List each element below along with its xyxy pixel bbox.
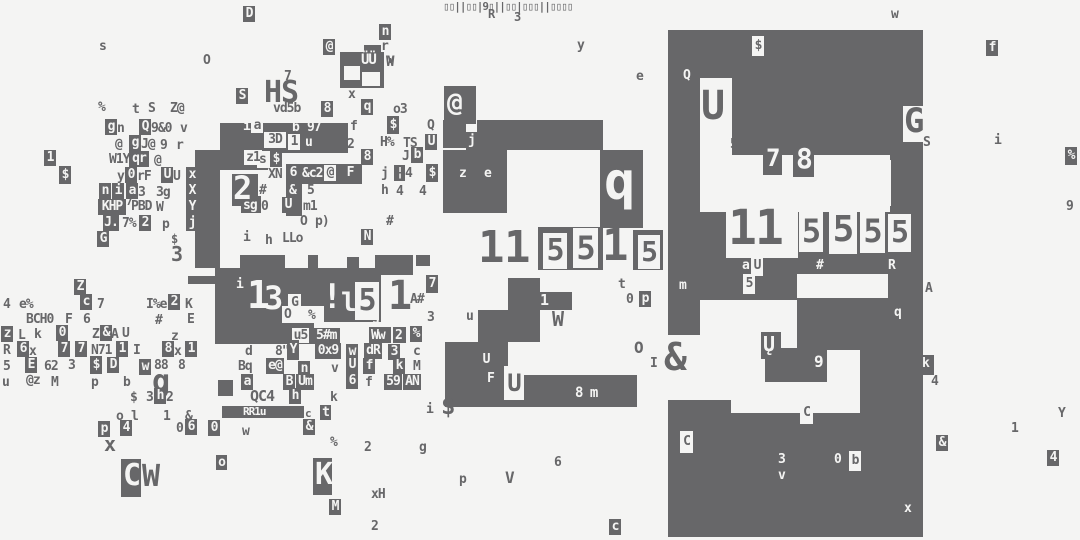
glyph: 7 [97,298,104,311]
glyph: O [284,308,291,321]
glyph: h [265,234,272,247]
glyph: 7% [122,217,136,230]
glyph: F [487,372,494,385]
glyph: Z [74,279,86,295]
glyph: 1 [288,134,300,150]
glyph: QC4 [250,389,274,404]
glyph: ! [322,280,341,314]
glyph: 1 [540,293,548,308]
glyph: 4 [396,185,403,198]
glyph: A [925,282,932,295]
glyph: k [922,357,929,370]
glyph: R [488,8,494,20]
glyph: e% [19,298,33,311]
glyph: v [778,469,785,482]
glyph: I [133,344,140,357]
glyph: 5 [799,210,823,252]
glyph: x [186,167,198,183]
glyph: d [245,345,252,358]
glyph: 4 [405,167,412,180]
glyph: 0 [626,293,633,306]
glyph: Ww [371,329,385,342]
glyph: M [413,360,420,373]
map-room-cutout [344,66,360,80]
glyph: @ [154,154,161,167]
glyph: Y [186,199,198,215]
glyph: O [203,54,210,67]
glyph: KHP [98,199,126,215]
glyph: 8 [321,101,333,117]
map-block [188,276,230,284]
glyph: 8 m [575,386,597,400]
glyph: 1 [163,410,170,423]
glyph: k [330,391,337,404]
glyph: BCH0 [26,313,53,326]
glyph: 2 [139,215,151,231]
glyph: m1 [303,200,317,213]
glyph: 6 [83,313,90,326]
glyph: 4 [931,375,938,388]
glyph: A# [410,293,424,306]
glyph: J [402,150,409,163]
glyph: 8 [178,359,185,372]
glyph: a [251,118,263,133]
glyph: o3 [393,103,407,116]
glyph: $ [426,164,438,182]
glyph: @z [26,374,40,387]
glyph: 6 [17,341,29,357]
glyph: i [994,134,1001,147]
map-block [508,278,540,342]
glyph: j [468,134,475,147]
glyph: 1 [116,341,128,357]
glyph: 1 [755,204,783,252]
glyph: Y [287,340,299,360]
glyph: 5 [543,233,567,269]
glyph: LLo [282,232,302,245]
glyph: RR1u [243,406,266,417]
glyph: l [131,410,138,423]
glyph: x [104,434,115,454]
glyph: 1 [728,204,756,252]
glyph: z [459,167,466,180]
glyph: 97 [307,121,321,134]
glyph: W [156,201,163,214]
glyph: % [308,309,315,322]
glyph: i [243,120,250,133]
glyph: @ [115,138,122,151]
glyph: U [480,352,492,368]
glyph: C [123,461,140,491]
glyph: 3 [138,186,145,199]
glyph: S [236,88,248,104]
glyph: s [259,153,266,166]
glyph: # [155,314,162,327]
glyph: 5 [888,214,911,252]
glyph: n [379,24,391,40]
glyph: 0 [56,325,68,341]
glyph: g [419,441,426,454]
glyph: u [2,376,9,389]
glyph: G [904,104,923,138]
glyph: 9 [814,354,823,370]
glyph: S [148,102,155,115]
glyph: t [320,405,331,420]
map-block [443,150,507,213]
glyph: 5 [573,228,598,268]
glyph: Q [683,69,690,82]
glyph: 5 [307,184,314,197]
glyph: E [25,357,37,373]
glyph: e [484,167,491,180]
glyph: b [849,451,861,471]
glyph: 5 [730,138,737,151]
glyph: Y [1058,407,1065,420]
glyph: D [243,6,255,22]
glyph: b [292,121,299,134]
glyph: v [331,362,338,375]
glyph: p) [315,215,329,228]
glyph: l [341,290,356,316]
glyph: 6 [346,373,358,389]
glyph: X [186,183,198,199]
glyph: H% [380,136,394,149]
glyph: 9&0 [151,122,171,135]
glyph: 7 [766,146,779,170]
glyph: & [936,435,948,451]
map-room-cutout [362,72,380,86]
glyph: U [425,134,437,150]
map-block [308,255,318,274]
glyph: @ [323,39,335,55]
glyph: 0 [834,453,841,466]
glyph: $ [387,116,399,134]
glyph: w [139,359,151,375]
glyph: ▯▯||▯▯|9▯||▯▯|▯▯▯||▯▯▯▯ [443,1,572,12]
glyph: f [986,40,998,56]
glyph: 7 [75,341,87,357]
glitch-terminal-canvas: ▯▯||▯▯|9▯||▯▯|▯▯▯||▯▯▯▯R3sOD@nrvÜÜWx7HSS… [0,0,1080,540]
glyph: 0 [176,422,183,435]
glyph: 2 [166,391,173,404]
glyph: U [701,86,724,126]
glyph: U [161,167,173,183]
map-block [478,310,508,342]
glyph: g [129,135,141,151]
glyph: j [186,215,198,231]
glyph: C [800,402,813,424]
glyph: e [636,70,643,83]
glyph: 7 [426,275,438,293]
glyph: 4 [120,420,132,436]
map-block [416,255,430,266]
glyph: h [381,184,388,197]
map-block [347,257,359,276]
glyph: f [365,376,372,389]
map-block [508,375,637,407]
glyph: 1 [504,226,530,270]
glyph: 1 [44,150,56,166]
glyph: 2 [347,138,354,151]
glyph: 8 [162,341,174,357]
glyph: XN [268,168,282,181]
glyph: 2 [395,329,402,342]
glyph: % [1065,147,1077,165]
glyph: qr [129,151,149,167]
glyph: 6 [554,456,561,469]
glyph: ÜÜ [361,53,376,67]
glyph: 2 [371,520,378,533]
glyph: N [361,229,373,245]
glyph: @ [447,90,462,116]
glyph: @ [324,165,336,181]
glyph: # [259,184,266,197]
glyph: O [300,215,307,228]
glyph: 9 [1066,200,1073,213]
glyph: 3 [68,359,75,372]
glyph: r [176,139,183,152]
glyph: 2 [364,441,371,454]
glyph: 4 [419,185,426,198]
glyph: 3 [146,391,153,404]
glyph: U [504,366,524,400]
glyph: k [393,358,405,374]
glyph: W1Y [109,153,129,166]
glyph: I [650,357,657,370]
glyph: I%e [146,298,166,311]
glyph: 5 [638,235,660,269]
glyph: 3 [264,282,282,314]
glyph: 5 [829,206,857,254]
glyph: 1 [478,226,504,270]
glyph: W [552,309,563,329]
glyph: $ [59,166,71,184]
glyph: x [904,502,911,515]
glyph: vd5b [273,102,300,115]
glyph: 5 [743,274,755,294]
glyph: G [97,231,109,247]
glyph: J@ [141,138,155,151]
glyph: 59 [384,374,402,390]
glyph: v [180,122,187,135]
glyph: 7 [58,341,70,357]
glyph: U [751,256,763,276]
glyph: # [816,259,823,272]
map-block [218,318,233,333]
glyph: 5 [860,210,885,253]
glyph: 4 [3,298,10,311]
map-block [375,255,413,275]
glyph: W [142,462,159,492]
glyph: p [639,291,651,307]
glyph: 1 [185,341,197,357]
glyph: 4 [1047,450,1059,466]
glyph: # [386,215,393,228]
glyph: U [282,197,294,213]
glyph: $ [752,36,764,56]
glyph: o [216,455,227,470]
glyph: Z@ [170,102,184,115]
glyph: n [99,183,111,199]
glyph: U [122,327,129,340]
glyph: q [604,156,634,208]
glyph: 0 [261,200,268,213]
glyph: 2 [168,294,180,310]
glyph: rF [137,170,151,183]
glyph: c [609,519,621,535]
glyph: w [242,425,249,438]
glyph: 3 [778,453,785,466]
glyph: y [577,39,584,52]
glyph: h [154,388,166,404]
glyph: 1 [602,224,628,268]
glyph: dR [364,343,382,359]
glyph: ¦ [394,165,405,181]
map-room-cutout [880,160,891,206]
glyph: p [91,376,98,389]
glyph: 3 [427,311,434,324]
glyph: & [664,338,686,376]
glyph: U [173,170,180,183]
glyph: z [1,326,13,342]
glyph: s [372,313,379,326]
glyph: 1 [1011,422,1018,435]
glyph: y [117,170,124,183]
glyph: e@ [266,358,284,374]
glyph: M [329,499,341,515]
glyph: 8 [796,145,812,173]
glyph: 0 [125,167,137,183]
glyph: 3D [264,132,286,148]
glyph: q [894,306,901,319]
glyph: % [98,101,105,114]
glyph: M [51,376,58,389]
map-block [443,120,466,148]
glyph: n [117,122,124,135]
glyph: F [344,165,356,181]
glyph: i [426,403,433,416]
glyph: % [410,326,422,342]
glyph: i [236,278,243,291]
glyph: p [162,218,169,231]
glyph: u [305,136,312,149]
glyph: E [187,313,194,326]
glyph: m [679,279,686,292]
glyph: 5#m [316,329,336,342]
glyph: k [34,328,41,341]
glyph: O [634,340,643,356]
glyph: C [680,431,693,453]
glyph: t [132,103,139,116]
glyph: A [111,328,118,341]
glyph: 3 [514,11,520,23]
glyph: 0 [208,420,220,436]
glyph: $ [441,394,454,418]
glyph: K [185,298,192,311]
glyph: b [123,376,130,389]
glyph: c [305,408,311,419]
glyph: 6 [287,165,299,181]
glyph: i [112,183,124,199]
glyph: W [386,55,393,69]
glyph: a [742,259,749,272]
glyph: $ [130,391,137,404]
glyph: $ [270,150,282,167]
map-block [240,255,285,268]
glyph: Ų [763,334,774,354]
glyph: c [413,345,420,358]
glyph: c [80,294,92,310]
glyph: Z [92,328,99,341]
glyph: q [361,99,373,115]
glyph: R [3,344,10,357]
glyph: Q [139,119,151,135]
glyph: 9 [160,139,167,152]
glyph: % [330,436,337,449]
glyph: h [289,388,301,404]
glyph: AN [403,374,421,390]
map-block [195,155,220,268]
glyph: Bq [238,360,252,373]
glyph: x [174,345,181,358]
map-block [218,380,233,396]
glyph: s [99,40,106,53]
glyph: 1 [388,276,411,316]
glyph: 62 [44,360,58,373]
glyph: t [618,278,625,291]
glyph: U [346,357,358,373]
glyph: & [289,184,296,197]
glyph: 3 [171,244,182,264]
glyph: u [466,310,473,323]
glyph: 3g [156,186,170,199]
map-block [477,120,603,150]
glyph: j [381,167,388,180]
glyph: R [888,259,895,272]
glyph: K [315,460,332,490]
glyph: f [363,358,375,374]
glyph: & [303,419,315,435]
glyph: g [105,119,117,135]
glyph: V [505,470,514,486]
glyph: f [350,120,357,133]
map-room-cutout [797,274,888,298]
glyph: J. [103,215,119,231]
glyph: S [923,136,930,149]
glyph: 0x9 [315,343,341,359]
glyph: $ [90,356,102,374]
glyph: Q [427,119,434,132]
glyph: &c2 [302,167,322,180]
glyph: i [243,231,250,244]
glyph: p [459,473,466,486]
glyph: w [891,8,898,21]
glyph: PBD [131,200,151,213]
glyph: 8 [361,149,373,165]
glyph: xH [371,488,385,501]
glyph: b [411,147,423,163]
glyph: sg [243,199,257,212]
glyph: 6 [185,419,197,435]
glyph: D [107,357,119,373]
glyph: 5 [3,360,10,373]
glyph: x [348,88,355,101]
